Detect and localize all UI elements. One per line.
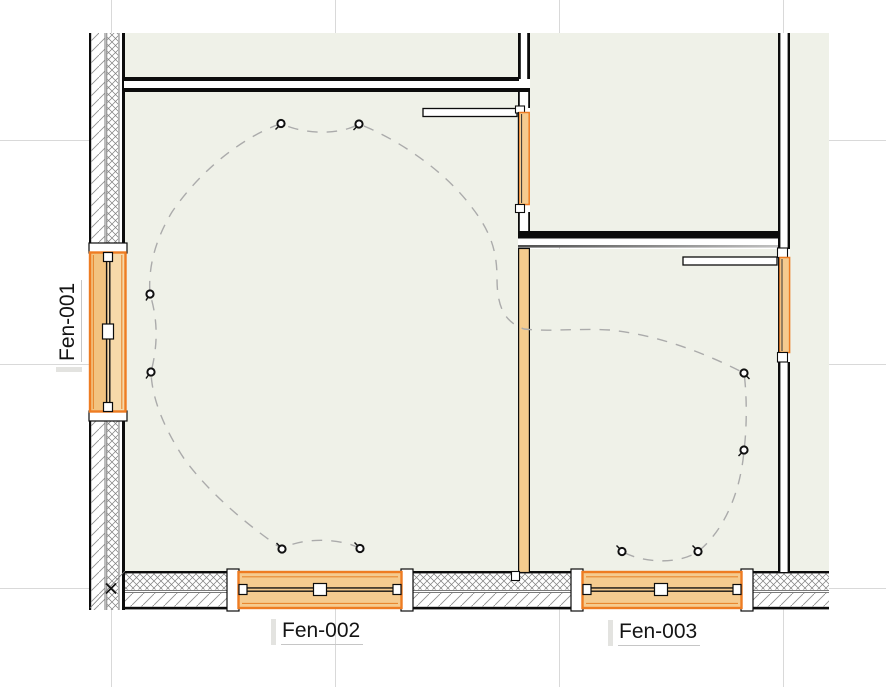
window-fen-002[interactable] bbox=[227, 569, 413, 611]
top-strip-wall[interactable] bbox=[124, 77, 530, 92]
label-text: Fen-003 bbox=[618, 620, 700, 646]
upper-right-room-bottom-wall[interactable] bbox=[518, 231, 790, 248]
window-fen-001[interactable] bbox=[89, 243, 127, 421]
label-tick bbox=[56, 367, 82, 372]
window-label-fen-003[interactable]: Fen-003 bbox=[608, 620, 700, 646]
beam-line bbox=[518, 245, 790, 248]
cad-canvas[interactable]: Fen-001 Fen-002 Fen-003 bbox=[0, 0, 886, 687]
window-right-wall[interactable] bbox=[778, 248, 790, 362]
sliding-door-leaf-right[interactable] bbox=[683, 257, 777, 265]
label-text: Fen-002 bbox=[281, 619, 363, 645]
label-tick bbox=[608, 620, 613, 646]
window-fen-003[interactable] bbox=[571, 569, 753, 611]
label-tick bbox=[271, 619, 276, 645]
label-text: Fen-001 bbox=[56, 280, 82, 362]
sliding-door-leaf-top[interactable] bbox=[423, 109, 517, 117]
window-label-fen-001[interactable]: Fen-001 bbox=[56, 280, 82, 372]
window-label-fen-002[interactable]: Fen-002 bbox=[271, 619, 363, 645]
